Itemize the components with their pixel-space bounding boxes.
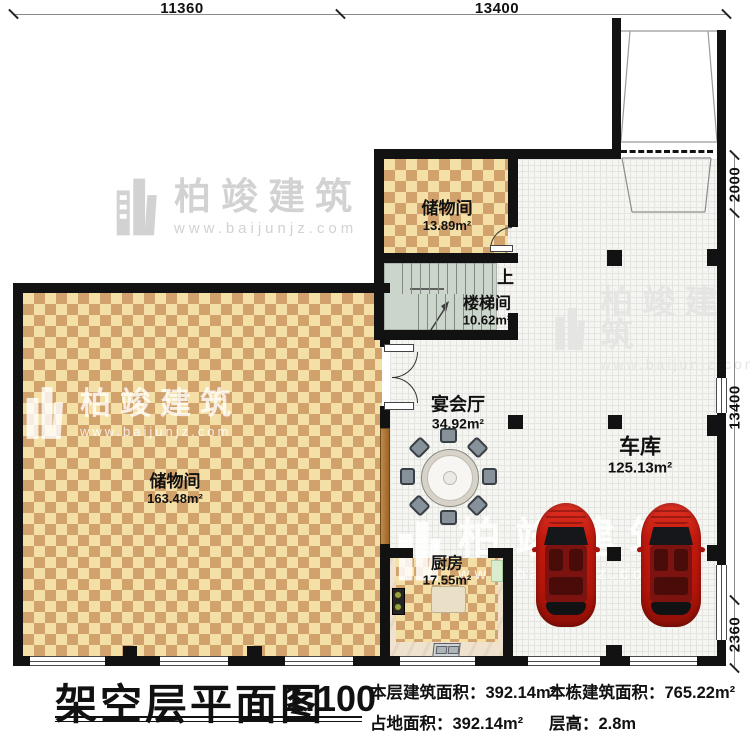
room-label-storage-small: 储物间 13.89m² — [422, 199, 473, 233]
stat-item: 本层建筑面积：392.14m² — [370, 679, 545, 703]
window — [716, 378, 727, 413]
wall — [508, 149, 518, 227]
window — [400, 656, 475, 666]
chair — [440, 510, 457, 525]
dining-table-center — [443, 471, 457, 485]
dimension-line-top — [13, 14, 726, 15]
wood-panel-wall — [380, 428, 390, 546]
watermark-brand: 柏竣建筑 — [174, 178, 362, 215]
stair-up-label: 上 — [497, 263, 514, 288]
garage-door — [621, 150, 713, 153]
stair-treads-upper — [402, 260, 497, 294]
wall — [374, 330, 518, 340]
wall — [13, 283, 390, 293]
door-leaf — [384, 344, 414, 352]
watermark: 柏竣建筑 www.baijunjz.com — [112, 176, 362, 238]
kitchen-island — [431, 586, 466, 613]
brand-logo-icon — [112, 176, 164, 238]
chair — [482, 468, 497, 485]
wall — [13, 283, 23, 666]
room-label-stairwell: 楼梯间 10.62m² — [463, 295, 511, 328]
car-rear-window — [546, 602, 586, 615]
room-label-garage: 车库 125.13m² — [608, 435, 672, 476]
column — [607, 547, 621, 561]
window — [160, 656, 228, 666]
dimension-label: 2360 — [727, 613, 744, 657]
wall — [374, 253, 518, 263]
column — [707, 415, 717, 436]
column — [123, 646, 137, 656]
door-leaf — [490, 245, 513, 252]
dimension-label: 13400 — [475, 0, 519, 17]
wall — [374, 149, 384, 340]
column — [508, 415, 523, 429]
wall — [503, 548, 513, 666]
room-label-kitchen: 厨房 17.55m² — [423, 555, 471, 588]
kitchen-counter — [491, 560, 503, 582]
window — [630, 656, 697, 666]
column — [607, 250, 622, 266]
column — [606, 645, 622, 656]
kitchen-sink — [432, 643, 460, 657]
window — [30, 656, 105, 666]
car-cabin — [545, 545, 587, 602]
room-label-banquet: 宴会厅 34.92m² — [431, 395, 485, 432]
area-statistics: 本层建筑面积：392.14m² 本栋建筑面积：765.22m² 占地面积：392… — [370, 679, 735, 734]
floor-plan-canvas: 柏竣建筑 www.baijunjz.com 柏竣建筑 www.baijunjz.… — [0, 0, 750, 748]
watermark-url: www.baijunjz.com — [174, 220, 362, 237]
room-label-storage-large: 储物间 163.48m² — [147, 472, 203, 506]
column — [707, 249, 717, 266]
column — [247, 646, 262, 656]
car-rear-window — [651, 602, 691, 615]
dimension-label: 13400 — [727, 386, 744, 430]
column — [608, 415, 622, 429]
car-cabin — [650, 545, 692, 602]
wall — [374, 149, 621, 159]
drawing-scale: 1:100 — [284, 678, 376, 720]
window — [528, 656, 600, 666]
window — [716, 565, 727, 640]
title-underline — [55, 716, 362, 722]
car — [641, 503, 701, 627]
dimension-label: 11360 — [160, 0, 203, 17]
door-leaf — [384, 402, 414, 410]
column — [707, 545, 717, 561]
stat-item: 占地面积：392.14m² — [370, 710, 545, 734]
car-windshield — [649, 527, 693, 545]
wall — [612, 18, 621, 155]
car-windshield — [544, 527, 588, 545]
stat-item: 本栋建筑面积：765.22m² — [549, 679, 735, 703]
burner-icon — [394, 591, 402, 599]
window — [285, 656, 353, 666]
wall — [717, 30, 726, 155]
dimension-label: 2000 — [727, 163, 744, 207]
car — [536, 503, 596, 627]
stat-item: 层高：2.8m — [549, 710, 735, 734]
wall — [380, 548, 413, 558]
wall — [380, 558, 390, 666]
chair — [400, 468, 415, 485]
burner-icon — [394, 603, 402, 611]
